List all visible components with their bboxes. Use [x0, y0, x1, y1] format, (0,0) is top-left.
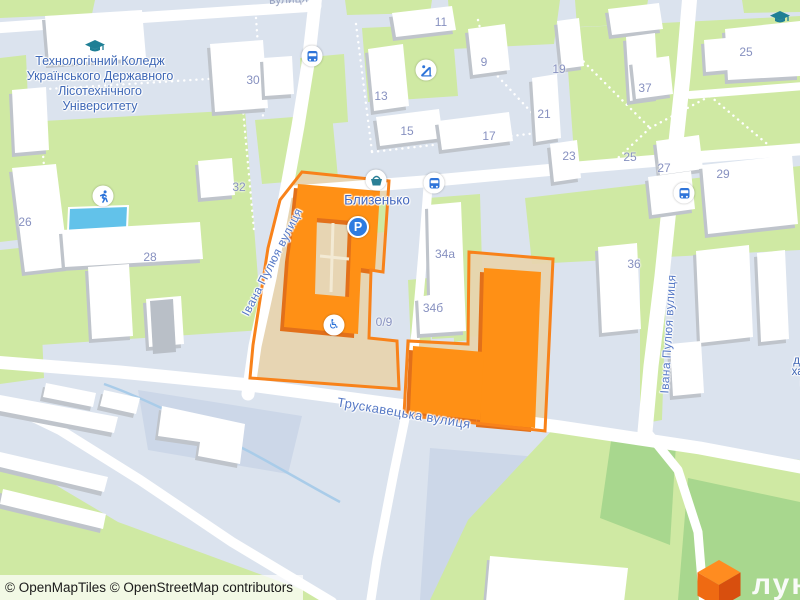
- house-number: 13: [374, 89, 387, 103]
- bus-stop-icon[interactable]: [302, 46, 323, 67]
- house-number: 30: [246, 73, 259, 87]
- wheelchair-glyph: ♿: [324, 315, 345, 336]
- attribution-link[interactable]: © OpenMapTiles © OpenStreetMap contribut…: [5, 580, 293, 595]
- house-number: 34а: [435, 247, 455, 261]
- house-number: 19: [552, 62, 565, 76]
- wheelchair-icon[interactable]: ♿: [324, 315, 345, 336]
- edge-partial-label: Ль держа харчов про: [792, 344, 800, 390]
- college-label-line: Технологічний Коледж: [27, 54, 174, 69]
- bus-glyph: [424, 173, 445, 194]
- shop-basket-glyph: [366, 170, 387, 191]
- house-number: 32: [232, 180, 245, 194]
- running-person-glyph: [93, 186, 114, 207]
- edge-partial-line: Ль: [792, 344, 800, 356]
- graduation-cap-icon[interactable]: [85, 40, 105, 54]
- house-number: 25: [739, 45, 752, 59]
- bus-stop-icon[interactable]: [424, 173, 445, 194]
- map-canvas[interactable]: Технологічний Коледж Українського Держав…: [0, 0, 800, 600]
- house-number: 23: [562, 149, 575, 163]
- house-number: 27: [657, 161, 670, 175]
- bus-glyph: [302, 46, 323, 67]
- playground-slide-glyph: [416, 60, 437, 81]
- graduation-cap-glyph: [770, 11, 790, 25]
- house-number: 11: [435, 15, 447, 29]
- house-number: 37: [638, 81, 651, 95]
- lun-logo[interactable]: лун: [694, 560, 800, 600]
- attribution-bar: © OpenMapTiles © OpenStreetMap contribut…: [0, 575, 303, 600]
- graduation-cap-glyph: [85, 40, 105, 54]
- college-label-line: Українського Державного: [27, 69, 174, 84]
- edge-partial-line: харчов: [792, 367, 800, 379]
- house-number: 26: [18, 215, 31, 229]
- house-number: 34б: [423, 301, 443, 315]
- house-number: 28: [143, 250, 156, 264]
- bus-glyph: [674, 183, 695, 204]
- lun-cube-icon: [694, 560, 744, 600]
- house-number: 9: [481, 55, 488, 69]
- running-person-icon[interactable]: [93, 186, 114, 207]
- college-label-line: Університету: [27, 99, 174, 114]
- house-number: 29: [716, 167, 729, 181]
- house-number: 21: [537, 107, 550, 121]
- parking-icon[interactable]: P: [347, 216, 369, 238]
- college-label-line: Лісотехнічного: [27, 84, 174, 99]
- house-number: 0/9: [376, 315, 393, 329]
- house-number: 25: [623, 150, 636, 164]
- bus-stop-icon[interactable]: [674, 183, 695, 204]
- parking-glyph: P: [347, 216, 369, 238]
- lun-logo-text: лун: [752, 570, 800, 600]
- college-label: Технологічний Коледж Українського Держав…: [27, 54, 174, 114]
- complex-name-label: Близенько: [344, 193, 410, 208]
- graduation-cap-icon[interactable]: [770, 11, 790, 25]
- shop-icon[interactable]: [366, 170, 387, 191]
- house-number: 36: [627, 257, 640, 271]
- playground-icon[interactable]: [416, 60, 437, 81]
- edge-partial-line: про: [792, 379, 800, 391]
- house-number: 17: [482, 129, 495, 143]
- house-number: 15: [400, 124, 413, 138]
